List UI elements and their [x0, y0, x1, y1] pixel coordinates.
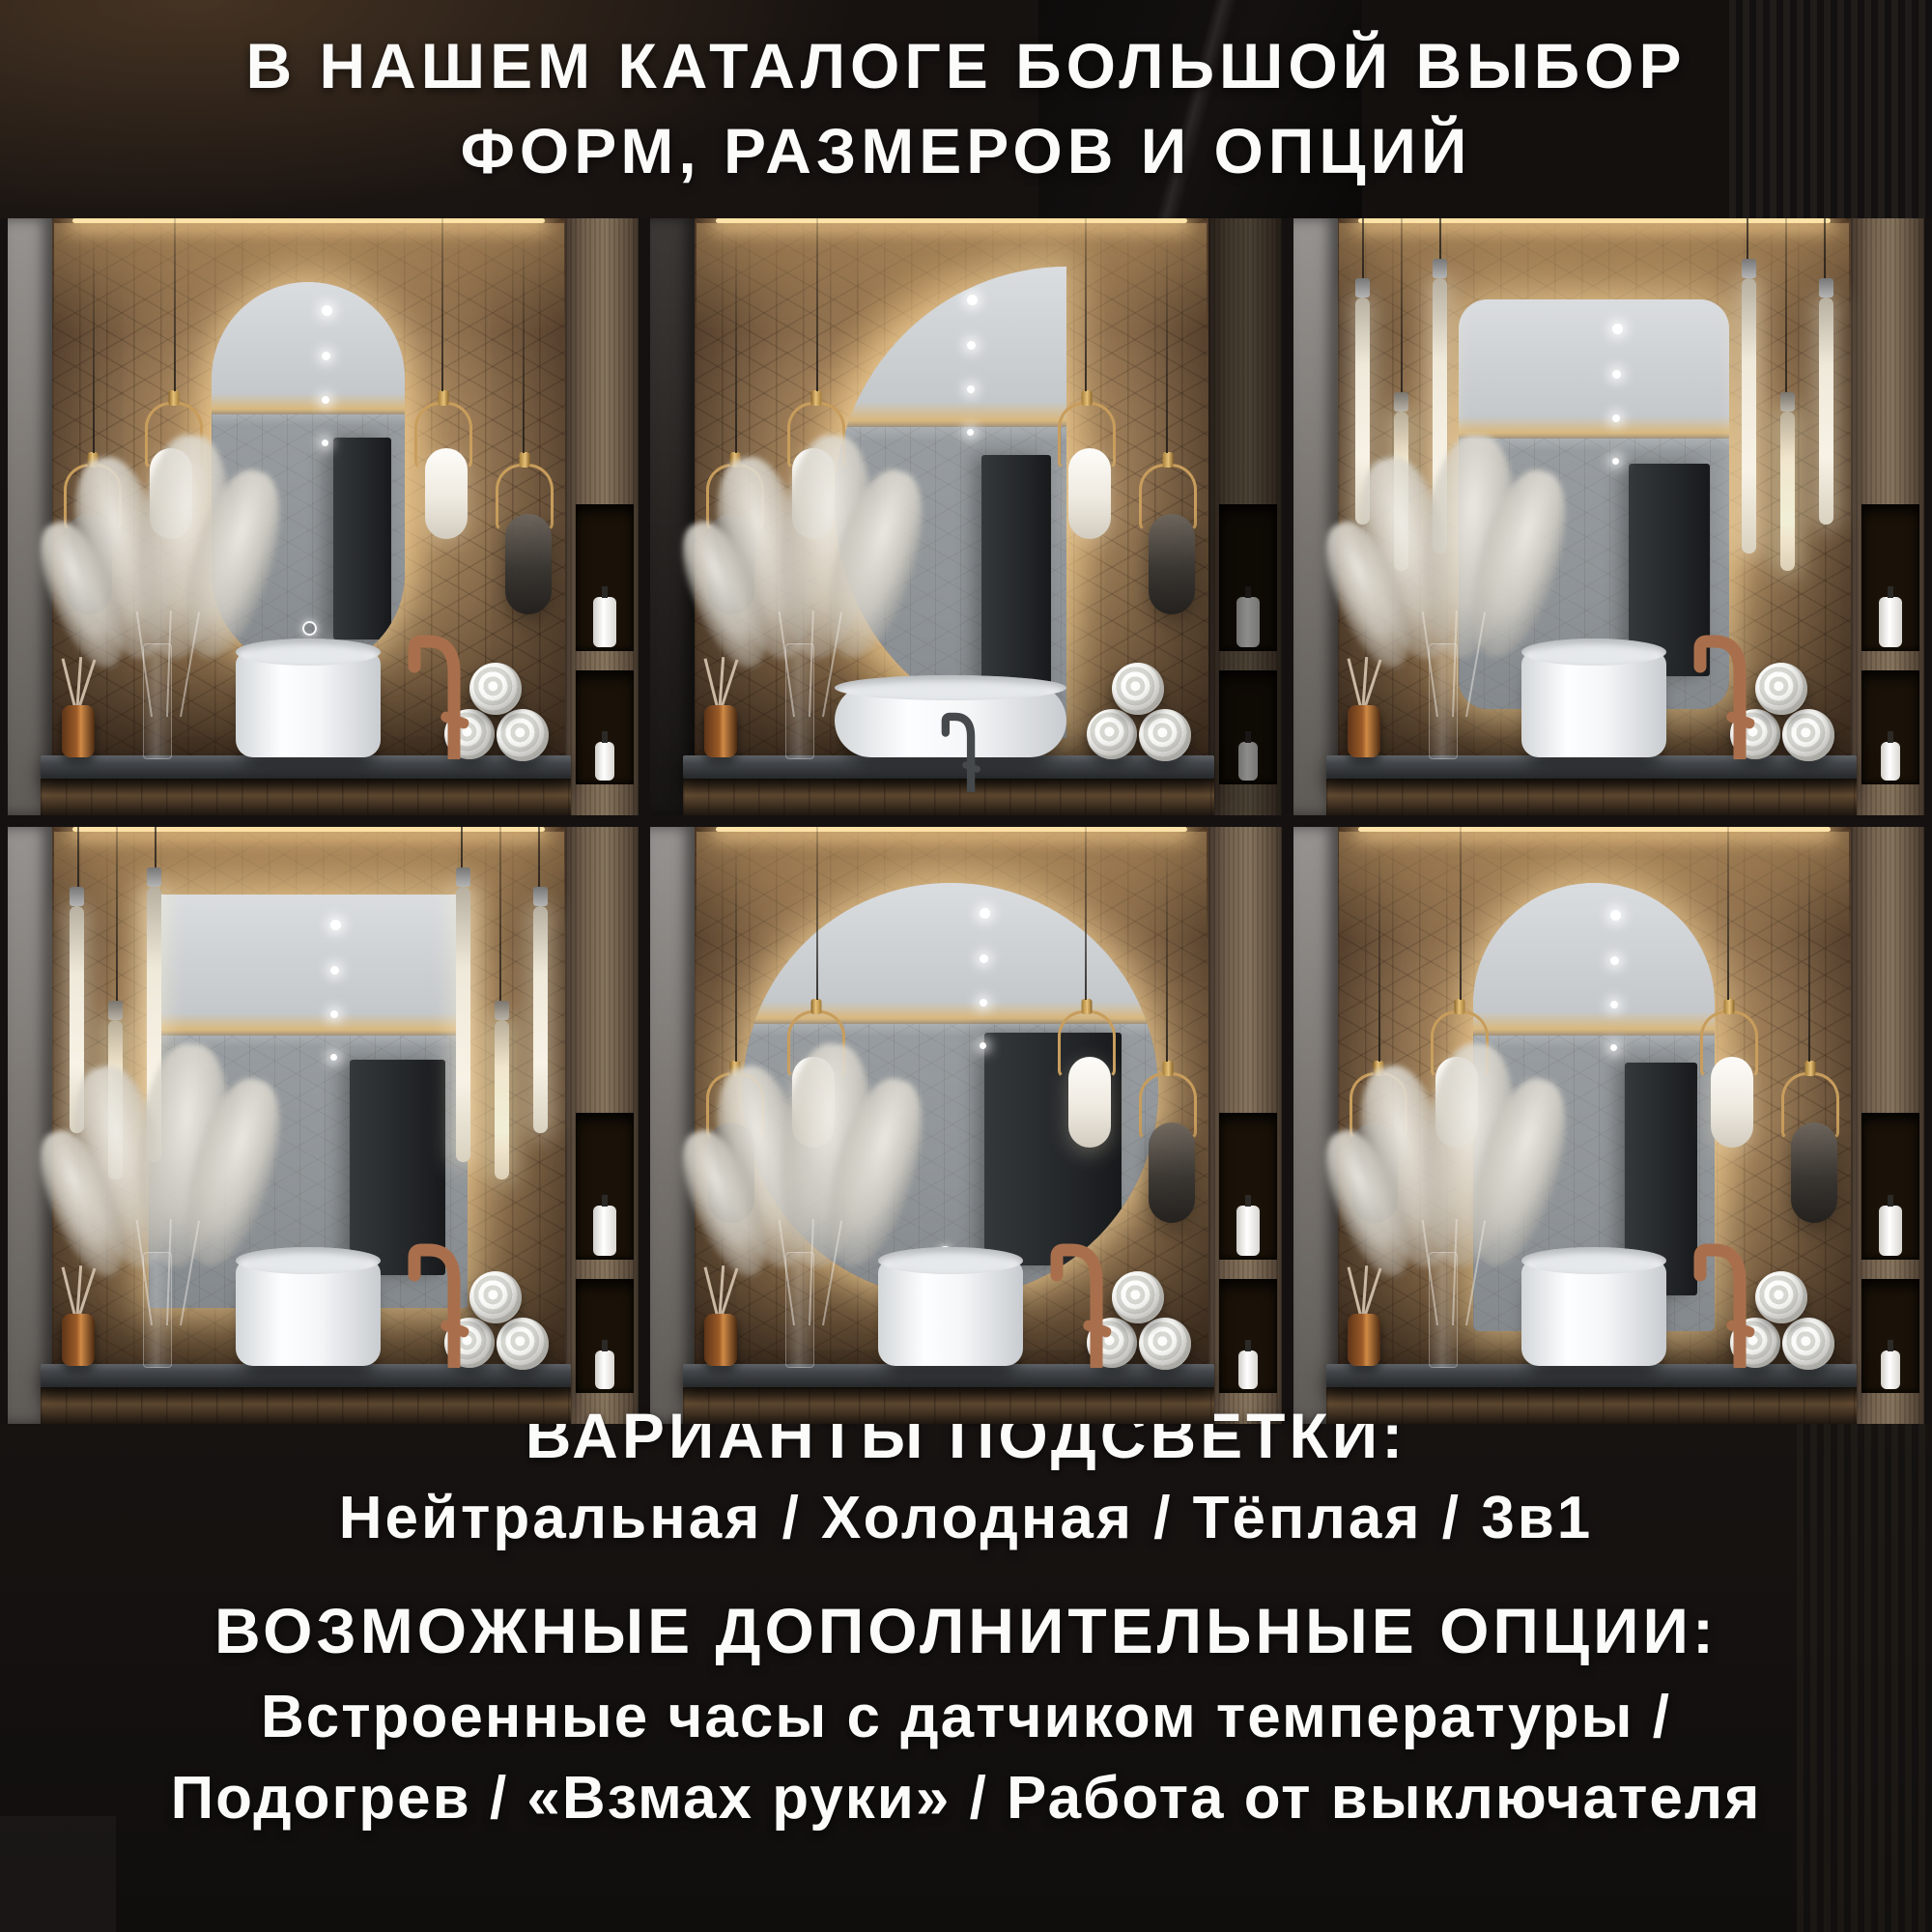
- faucet: [1027, 1231, 1116, 1368]
- under-counter-wall: [683, 1387, 1213, 1424]
- headline-line2: ФОРМ, РАЗМЕРОВ И ОПЦИЙ: [0, 114, 1932, 187]
- glass-vase: [1429, 643, 1458, 759]
- cabinet-niche: [1219, 1113, 1277, 1260]
- diffuser-bottle: [62, 705, 95, 757]
- white-capsule-lamp: [1711, 1057, 1753, 1148]
- faucet: [1670, 1231, 1759, 1368]
- tube-pendant-lamp: [1819, 298, 1833, 525]
- door-reflection: [333, 438, 391, 639]
- marble-wall-strip: [1293, 218, 1338, 815]
- cabinet-niche: [1861, 504, 1919, 651]
- glass-vase: [143, 643, 172, 759]
- pampas-plant: [1344, 429, 1585, 670]
- diffuser-bottle: [704, 705, 737, 757]
- marble-wall-strip: [650, 218, 695, 815]
- under-counter-wall: [1326, 1387, 1857, 1424]
- diffuser-bottle: [1348, 705, 1380, 757]
- white-capsule-lamp: [425, 448, 468, 539]
- reed-diffuser: [702, 1308, 741, 1366]
- ceiling-led-strip: [1358, 218, 1831, 223]
- headline-line1: В НАШЕМ КАТАЛОГЕ БОЛЬШОЙ ВЫБОР: [0, 29, 1932, 102]
- diffuser-bottle: [62, 1314, 95, 1366]
- cabinet-niche: [1219, 670, 1277, 784]
- extra-options-line1: Встроенные часы с датчиком температуры /: [0, 1683, 1932, 1751]
- tile-rounded-rectangle-mirror: [1293, 218, 1924, 815]
- tile-half-moon-mirror: [650, 218, 1281, 815]
- tube-pendant-lamp: [1780, 412, 1795, 571]
- lighting-options-list: Нейтральная / Холодная / Тёплая / 3в1: [0, 1484, 1932, 1552]
- pendant-lamp-group-right: [397, 885, 561, 1291]
- spotlight-reflections: [322, 305, 333, 446]
- marble-wall-strip: [8, 827, 52, 1424]
- wood-cabinet-strip: [1851, 218, 1924, 815]
- cabinet-niche: [1861, 1279, 1919, 1393]
- under-counter-wall: [1326, 779, 1857, 815]
- cabinet-niche: [1219, 504, 1277, 651]
- tile-oval-mirror: [8, 218, 639, 815]
- cabinet-niche: [1861, 1113, 1919, 1260]
- vessel-sink: [1521, 1260, 1666, 1366]
- extra-options-line2: Подогрев / «Взмах руки» / Работа от выкл…: [0, 1764, 1932, 1833]
- spotlight-reflections: [1612, 324, 1624, 465]
- cabinet-niche: [1219, 1279, 1277, 1393]
- spotlight-reflections: [1610, 910, 1622, 1051]
- pampas-plant: [1344, 1037, 1585, 1279]
- pampas-plant: [58, 429, 299, 670]
- glass-vase: [143, 1252, 172, 1368]
- tube-pendant-lamp: [495, 1020, 509, 1179]
- glass-vase: [1429, 1252, 1458, 1368]
- smoked-capsule-lamp: [1791, 1122, 1837, 1223]
- under-counter-wall: [41, 1387, 571, 1424]
- pampas-plant: [700, 429, 942, 670]
- cosmetic-bottle: [1879, 1206, 1902, 1256]
- smoked-capsule-lamp: [505, 514, 552, 614]
- reed-diffuser: [1346, 699, 1384, 757]
- marble-wall-strip: [650, 827, 695, 1424]
- white-capsule-lamp: [1068, 1057, 1111, 1148]
- under-counter-wall: [41, 779, 571, 815]
- reed-diffuser: [1346, 1308, 1384, 1366]
- extra-options-title: ВОЗМОЖНЫЕ ДОПОЛНИТЕЛЬНЫЕ ОПЦИИ:: [0, 1594, 1932, 1667]
- tube-pendant-lamp: [533, 906, 548, 1133]
- smoked-capsule-lamp: [1149, 1122, 1195, 1223]
- pendant-lamp-group-right: [1683, 276, 1847, 682]
- reed-diffuser: [60, 699, 99, 757]
- wood-cabinet-strip: [565, 827, 639, 1424]
- smoked-capsule-lamp: [1149, 514, 1195, 614]
- product-infographic: В НАШЕМ КАТАЛОГЕ БОЛЬШОЙ ВЫБОР ФОРМ, РАЗ…: [0, 0, 1932, 1932]
- pendant-lamp-group-right: [1040, 363, 1205, 692]
- spotlight-reflections: [967, 295, 979, 436]
- background-shade: [0, 1816, 116, 1932]
- mirror-grid: [8, 218, 1924, 1424]
- marble-wall-strip: [8, 218, 52, 815]
- wood-cabinet-strip: [1208, 218, 1282, 815]
- diffuser-bottle: [1348, 1314, 1380, 1366]
- spotlight-reflections: [980, 908, 991, 1049]
- pampas-plant: [700, 1037, 942, 1279]
- cosmetic-bottle: [1881, 742, 1900, 781]
- cabinet-niche: [1861, 670, 1919, 784]
- white-capsule-lamp: [1068, 448, 1111, 539]
- reed-diffuser: [702, 699, 741, 757]
- reed-diffuser: [60, 1308, 99, 1366]
- cosmetic-bottle: [1879, 597, 1902, 647]
- marble-wall-strip: [1293, 827, 1338, 1424]
- tile-arch-mirror: [1293, 827, 1924, 1424]
- pampas-plant: [58, 1037, 299, 1279]
- cosmetic-bottle: [1236, 1206, 1260, 1256]
- wood-cabinet-strip: [1851, 827, 1924, 1424]
- glass-vase: [785, 1252, 814, 1368]
- towel-rolls: [1085, 653, 1216, 761]
- cosmetic-bottle: [593, 1206, 616, 1256]
- faucet: [384, 1231, 473, 1368]
- vessel-sink: [236, 1260, 381, 1366]
- cabinet-niche: [576, 1113, 634, 1260]
- touch-sensor-icon: [302, 621, 317, 636]
- cabinet-niche: [576, 670, 634, 784]
- cosmetic-bottle: [1881, 1350, 1900, 1389]
- vessel-sink: [236, 651, 381, 757]
- vessel-sink: [878, 1260, 1023, 1366]
- cosmetic-bottle: [595, 742, 614, 781]
- tile-rectangle-mirror: [8, 827, 639, 1424]
- tile-round-mirror: [650, 827, 1281, 1424]
- cosmetic-bottle: [595, 1350, 614, 1389]
- cosmetic-bottle: [1238, 742, 1258, 781]
- diffuser-bottle: [704, 1314, 737, 1366]
- cosmetic-bottle: [1236, 597, 1260, 647]
- vessel-sink: [1521, 651, 1666, 757]
- glass-vase: [785, 643, 814, 759]
- faucet: [926, 704, 983, 792]
- cabinet-niche: [576, 1279, 634, 1393]
- wood-cabinet-strip: [565, 218, 639, 815]
- cabinet-niche: [576, 504, 634, 651]
- spotlight-reflections: [330, 920, 342, 1061]
- wood-cabinet-strip: [1208, 827, 1282, 1424]
- tube-pendant-lamp: [456, 887, 470, 1162]
- faucet: [384, 622, 473, 759]
- cosmetic-bottle: [1238, 1350, 1258, 1389]
- faucet: [1670, 622, 1759, 759]
- cosmetic-bottle: [593, 597, 616, 647]
- tube-pendant-lamp: [1742, 278, 1756, 554]
